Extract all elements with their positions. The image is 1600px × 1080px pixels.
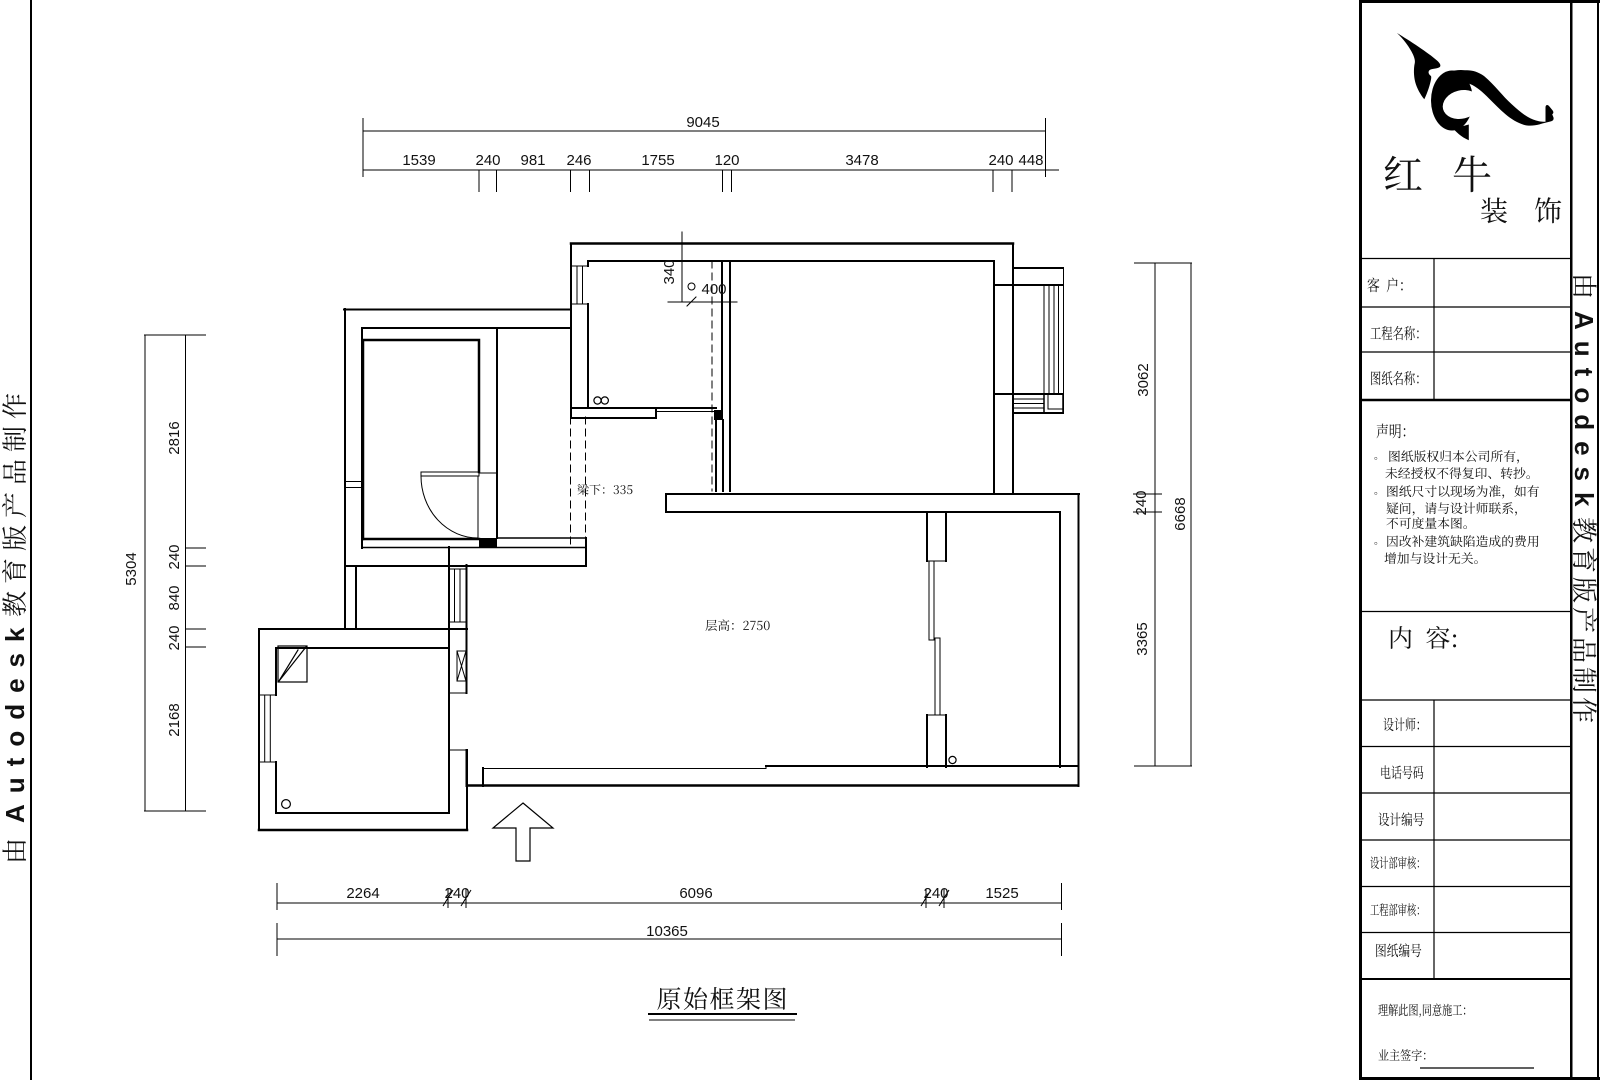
svg-text:240: 240	[1133, 490, 1150, 515]
svg-text:10365: 10365	[646, 923, 688, 940]
svg-text:240: 240	[166, 625, 183, 650]
svg-text:9045: 9045	[686, 114, 719, 131]
svg-text:6668: 6668	[1172, 497, 1189, 530]
svg-text:6096: 6096	[679, 885, 712, 902]
svg-text:240: 240	[166, 544, 183, 569]
svg-text:2168: 2168	[166, 703, 183, 736]
svg-text:Autodesk: Autodesk	[1569, 311, 1599, 517]
svg-text:240: 240	[444, 885, 469, 902]
svg-text:3478: 3478	[845, 152, 878, 169]
svg-text:1755: 1755	[641, 152, 674, 169]
svg-text:Autodesk: Autodesk	[0, 617, 30, 823]
svg-text:400: 400	[701, 281, 726, 298]
svg-text:340: 340	[661, 259, 678, 284]
svg-text:448: 448	[1018, 152, 1043, 169]
svg-text:240: 240	[475, 152, 500, 169]
svg-text:5304: 5304	[123, 552, 140, 585]
svg-text:2816: 2816	[166, 421, 183, 454]
svg-text:1539: 1539	[402, 152, 435, 169]
svg-text:246: 246	[566, 152, 591, 169]
svg-text:2264: 2264	[346, 885, 379, 902]
svg-text:3062: 3062	[1135, 363, 1152, 396]
svg-text:840: 840	[166, 585, 183, 610]
svg-text:240: 240	[988, 152, 1013, 169]
svg-text:120: 120	[714, 152, 739, 169]
svg-text:3365: 3365	[1134, 622, 1151, 655]
svg-text:981: 981	[520, 152, 545, 169]
svg-text:240: 240	[923, 885, 948, 902]
svg-text:1525: 1525	[985, 885, 1018, 902]
